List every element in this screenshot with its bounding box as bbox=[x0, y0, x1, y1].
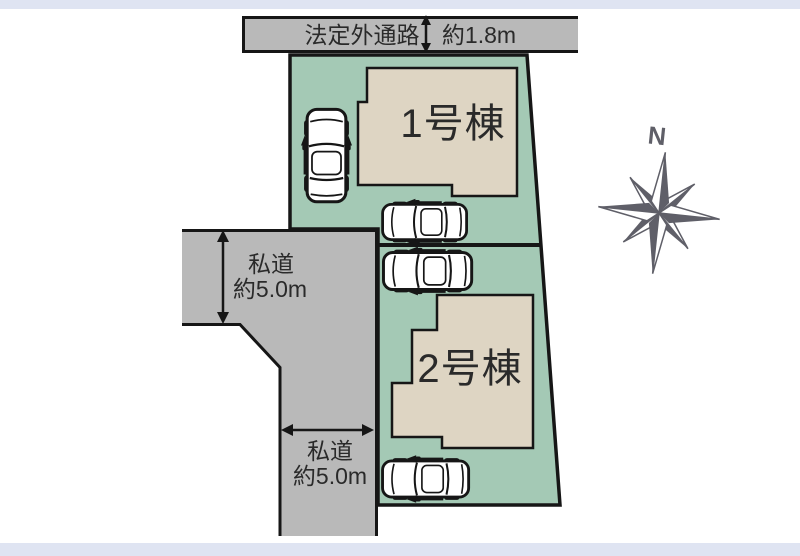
car-icon-lot2-lower bbox=[383, 455, 469, 503]
car-icon-lot1-horizontal bbox=[383, 199, 467, 245]
site-plan-page: 法定外通路 約1.8m 私道 約5.0m 私道 約5.0m bbox=[0, 0, 800, 556]
page-top-strip bbox=[0, 0, 800, 9]
private-road-upper-width-label: 約5.0m bbox=[233, 276, 307, 302]
legal-outside-path-road: 法定外通路 約1.8m bbox=[242, 15, 578, 53]
legal-path-width-label: 約1.8m bbox=[442, 22, 516, 48]
site-plan-image: 法定外通路 約1.8m 私道 約5.0m 私道 約5.0m bbox=[0, 0, 800, 556]
building-1: 1号棟 bbox=[358, 68, 517, 196]
private-road: 私道 約5.0m 私道 約5.0m bbox=[182, 229, 377, 536]
car-icon-lot2-upper bbox=[383, 247, 471, 296]
private-road-lower-label: 私道 bbox=[307, 438, 353, 464]
private-road-lower-width-label: 約5.0m bbox=[293, 463, 367, 489]
car-icon-lot1-vertical bbox=[301, 109, 352, 201]
page-bottom-strip bbox=[0, 543, 800, 556]
legal-path-label: 法定外通路 bbox=[305, 22, 420, 48]
building-2-label: 2号棟 bbox=[417, 347, 522, 391]
compass-rose-icon: N bbox=[592, 117, 729, 280]
building-1-label: 1号棟 bbox=[400, 102, 505, 146]
private-road-upper-label: 私道 bbox=[248, 251, 294, 277]
north-label: N bbox=[647, 122, 668, 152]
